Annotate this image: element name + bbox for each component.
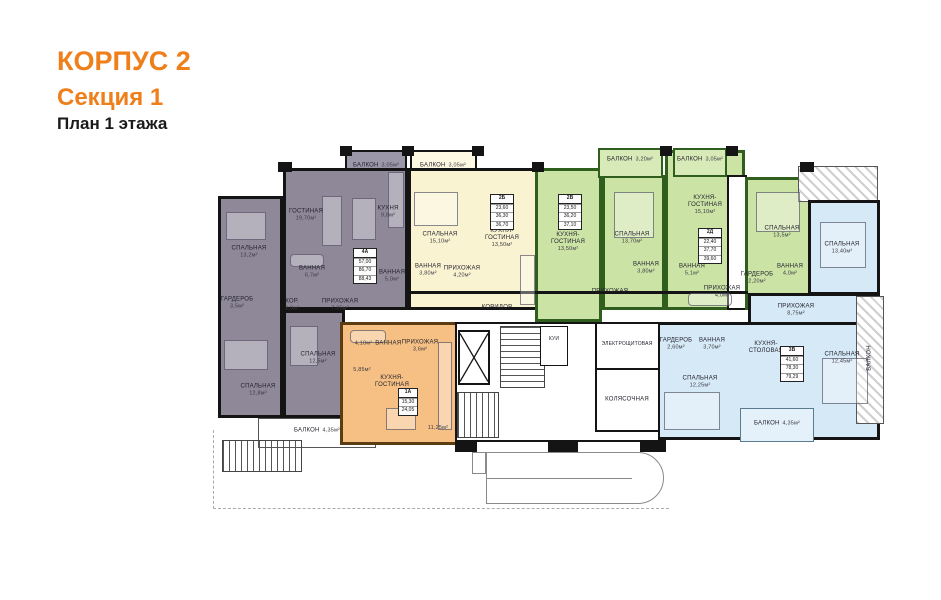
furniture-bed [822,358,868,404]
balcony-label: БАЛКОН3,05м² [420,163,466,170]
staircase-main [500,326,545,388]
apartment-stat-box: 2В 23,50 36,20 37,10 [558,194,582,230]
room-label: КУХНЯ-ГОСТИНАЯ [369,375,415,389]
room-label: СПАЛЬНАЯ15,10м² [423,231,458,244]
room-label: СПАЛЬНАЯ12,45м² [825,351,860,364]
balcony-label: БАЛКОН3,20м² [607,157,653,164]
porch-pier [640,440,666,452]
furniture-bed [664,392,720,430]
room-label: СПАЛЬНАЯ13,5м² [765,225,800,238]
room-label: СПАЛЬНАЯ12,8м² [241,383,276,396]
room-label: ГАРДЕРОБ3,5м² [221,296,254,309]
room-label: ГАРДЕРОБ2,20м² [741,271,774,284]
room-label: ВАННАЯ5,1м² [679,263,705,276]
electrical-room-label: ЭЛЕКТРОЩИТОВАЯ [601,342,652,348]
room-label: ВАННАЯ6,7м² [299,265,325,278]
room-label: ПРИХОЖАЯ8,75м² [778,303,814,316]
room-label: ВАННАЯ3,80м² [415,263,441,276]
stroller-room-label: КОЛЯСОЧНАЯ [605,397,649,404]
room-label: ВАННАЯ5,0м² [379,269,405,282]
corridor-label: КОРИДОР [482,305,513,312]
utility-room-label: КУИ [549,337,559,343]
elevator-x-icon [460,332,488,383]
room-label: КОР.3,0м² [285,298,299,311]
room-label: КУХНЯ9,8м² [377,205,398,218]
room-label: КУХНЯ-ГОСТИНАЯ15,10м² [682,195,728,215]
balcony-label: БАЛКОН4,35м² [294,428,340,435]
furniture-bed [224,340,268,370]
floor-plan-page: КОРПУС 2 Секция 1 План 1 этажа [0,0,941,600]
apartment-stat-box: 1А 15,30 24,05 [398,388,418,416]
room-label: ВАННАЯ3,80м² [633,261,659,274]
balcony-label: БАЛКОН3,05м² [353,163,399,170]
balcony-label: БАЛКОН4,35м² [754,421,800,428]
furniture-bed [226,212,266,240]
furniture-bed [414,192,458,226]
facade-pier [340,146,352,156]
elevator-shaft [458,330,490,385]
room-label: ГАРДЕРОБ2,60м² [660,337,693,350]
room-label: СПАЛЬНАЯ13,40м² [825,241,860,254]
facade-pier [278,162,292,172]
area-label: 5,85м² [353,367,371,373]
room-label: КУХНЯ-ГОСТИНАЯ13,50м² [545,232,591,252]
facade-pier [660,146,672,156]
area-label: 11,25м² [428,425,448,431]
porch-pier [455,440,477,452]
apartment-stat-box: 2Д 22,40 37,70 39,60 [698,228,722,264]
facade-pier [532,162,544,172]
site-boundary-dashed [213,430,669,509]
facade-pier [472,146,484,156]
furniture-table [352,198,376,240]
utility-room-block [540,326,568,366]
balcony-label: БАЛКОН3,05м² [677,157,723,164]
room-label: КУХНЯ-ГОСТИНАЯ13,50м² [479,228,525,248]
facade-pier [800,162,814,172]
section-title: Секция 1 [57,84,163,112]
room-label: ПРИХОЖАЯ4,0м² [704,285,740,298]
furniture-kitchen-counter [520,255,535,305]
room-label: ПРИХОЖАЯ3,6м² [402,339,438,352]
room-label: ВАННАЯ3,70м² [699,337,725,350]
furniture-kitchen-counter [388,172,404,228]
facade-pier [402,146,414,156]
floor-title: План 1 этажа [57,114,167,134]
facade-pier [726,146,738,156]
room-label: ВАННАЯ4,0м² [777,263,803,276]
room-label: ПРИХОЖАЯ [592,289,628,296]
room-label: ПРИХОЖАЯ7,35м² [322,298,358,311]
apartment-stat-box: 2Б 23,60 36,30 36,70 [490,194,514,230]
room-label: СПАЛЬНАЯ12,5м² [301,351,336,364]
apartment-stat-box: 3В 41,60 78,30 79,29 [780,346,804,382]
room-label: СПАЛЬНАЯ13,2м² [232,245,267,258]
balcony-label: БАЛКОН [867,345,874,371]
room-label: ПРИХОЖАЯ4,20м² [444,265,480,278]
furniture-sofa [322,196,342,246]
building-title: КОРПУС 2 [57,46,191,77]
room-label: СПАЛЬНАЯ13,70м² [615,231,650,244]
room-label: ГОСТИНАЯ19,70м² [289,208,323,221]
apartment-stat-box: 4А 57,00 86,70 88,43 [353,248,377,284]
room-label: СПАЛЬНАЯ12,25м² [683,375,718,388]
room-label: 4,10м²ВАННАЯ [355,341,402,348]
furniture-kitchen-counter [438,342,452,430]
porch-pier [548,440,578,452]
